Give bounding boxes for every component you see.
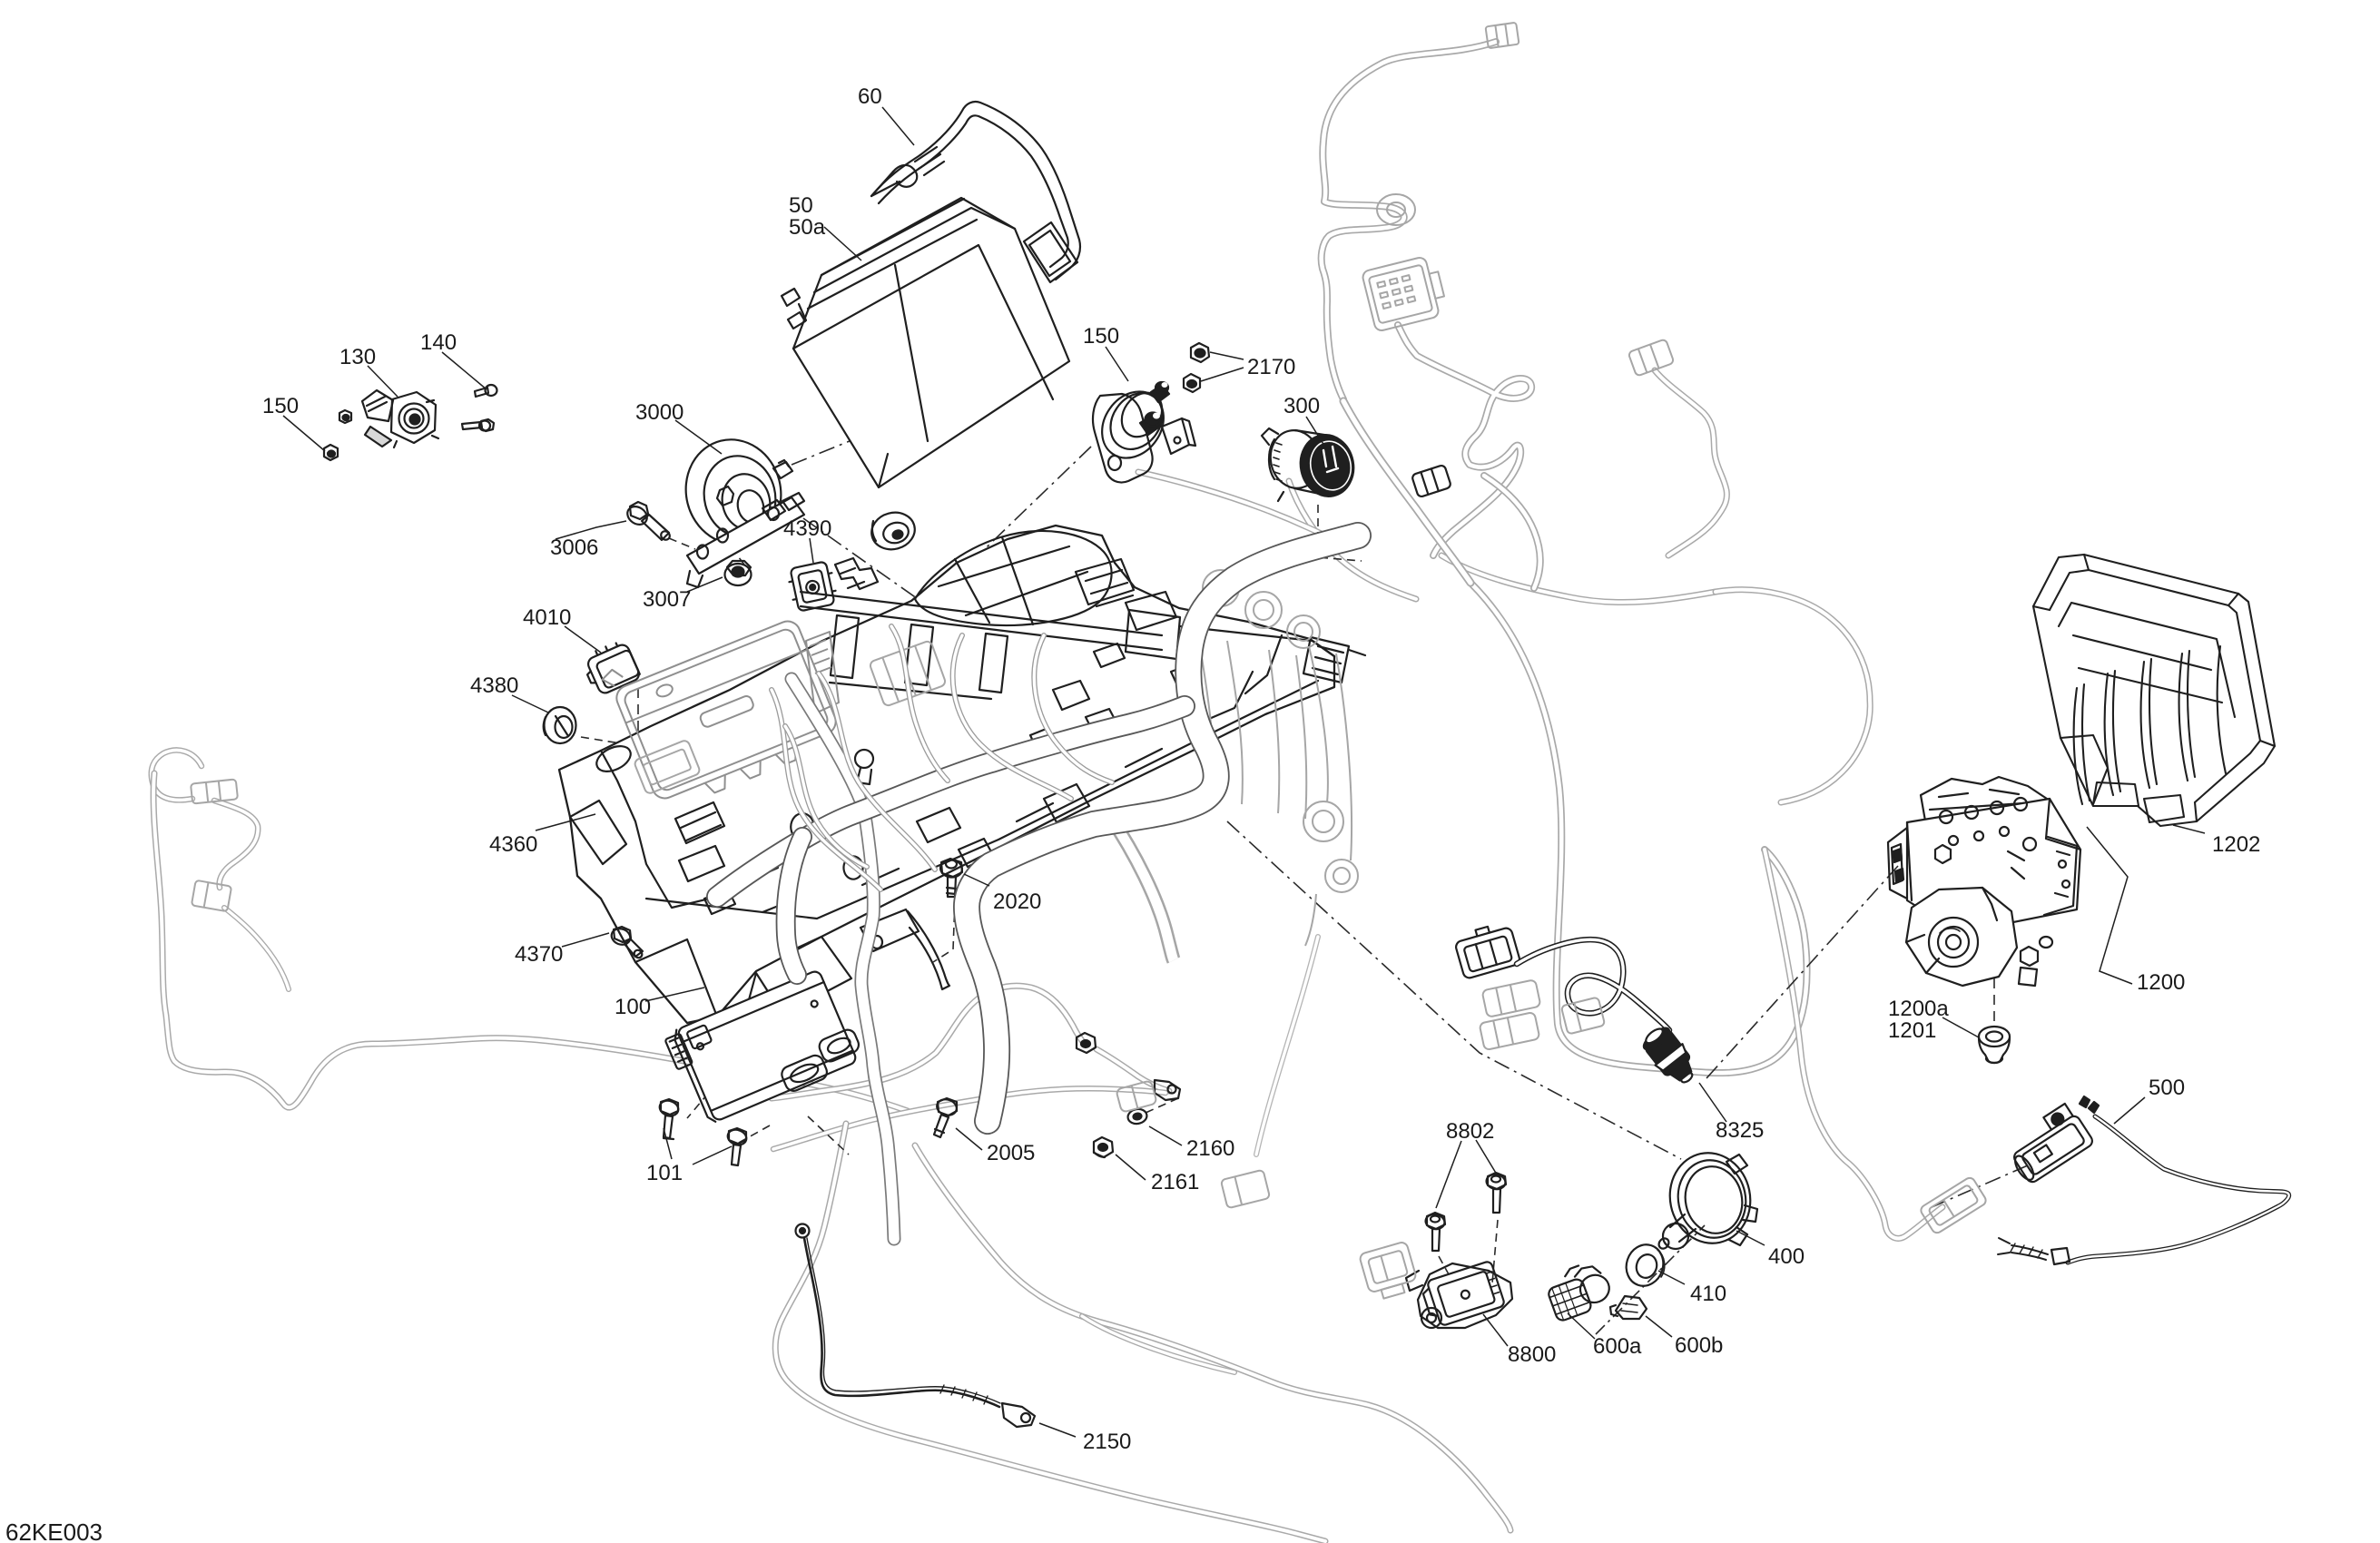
svg-text:150: 150 [262,394,299,418]
svg-text:1202: 1202 [2212,832,2260,857]
svg-text:2170: 2170 [1247,355,1295,379]
svg-text:150: 150 [1083,324,1119,349]
svg-text:50a: 50a [789,215,826,240]
svg-text:2020: 2020 [993,889,1041,914]
svg-text:2161: 2161 [1151,1170,1199,1194]
svg-text:410: 410 [1690,1282,1726,1306]
svg-text:4390: 4390 [783,516,831,541]
svg-text:3000: 3000 [635,400,684,425]
svg-text:4010: 4010 [523,605,571,630]
svg-text:8325: 8325 [1716,1118,1764,1143]
svg-text:130: 130 [339,345,376,369]
svg-text:400: 400 [1768,1244,1805,1269]
svg-text:1200: 1200 [2137,970,2185,995]
svg-text:100: 100 [615,995,651,1019]
svg-text:600a: 600a [1593,1334,1642,1359]
svg-text:2150: 2150 [1083,1430,1131,1454]
svg-text:60: 60 [858,84,882,109]
svg-text:4360: 4360 [489,832,537,857]
svg-text:600b: 600b [1675,1333,1723,1358]
svg-text:4370: 4370 [515,942,563,967]
svg-text:8802: 8802 [1446,1119,1494,1144]
svg-text:2005: 2005 [987,1141,1035,1165]
svg-text:3006: 3006 [550,536,598,560]
svg-text:2160: 2160 [1186,1136,1234,1161]
svg-text:300: 300 [1283,394,1320,418]
svg-text:1201: 1201 [1888,1018,1936,1043]
svg-text:1200a: 1200a [1888,997,1949,1021]
svg-text:101: 101 [646,1161,683,1185]
svg-text:140: 140 [420,330,457,355]
svg-text:4380: 4380 [470,673,518,698]
svg-text:3007: 3007 [643,587,691,612]
svg-text:8800: 8800 [1508,1342,1556,1367]
svg-text:62KE003: 62KE003 [5,1518,103,1543]
svg-text:500: 500 [2149,1076,2185,1100]
svg-text:50: 50 [789,193,813,218]
